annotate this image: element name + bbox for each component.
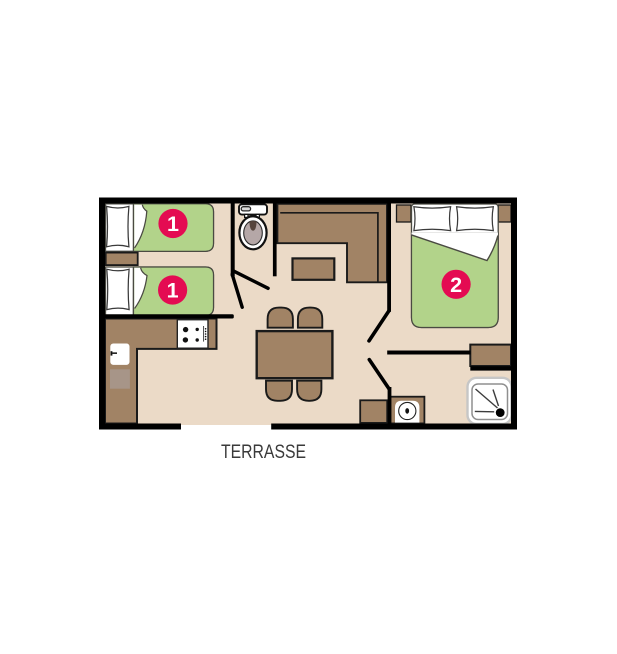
svg-text:2: 2 <box>450 273 462 297</box>
svg-text:TERRASSE: TERRASSE <box>221 441 306 463</box>
svg-text:1: 1 <box>167 279 179 303</box>
svg-text:1: 1 <box>167 212 179 236</box>
